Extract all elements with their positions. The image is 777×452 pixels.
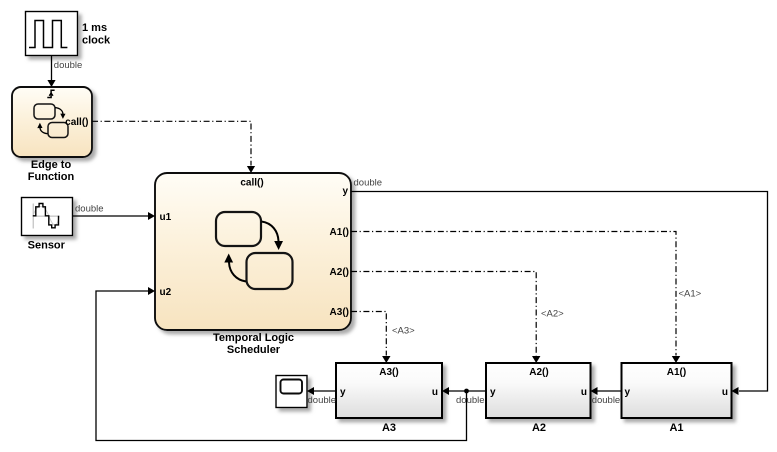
svg-text:Scheduler: Scheduler (227, 344, 281, 356)
svg-text:Edge to: Edge to (31, 159, 72, 171)
svg-text:call(): call() (65, 117, 88, 128)
svg-text:y: y (340, 387, 346, 398)
svg-text:double: double (308, 395, 337, 406)
svg-text:A3(): A3() (379, 367, 398, 378)
svg-text:double: double (354, 177, 383, 188)
svg-text:y: y (625, 387, 631, 398)
svg-text:double: double (54, 60, 83, 71)
svg-text:clock: clock (82, 34, 111, 46)
svg-text:u: u (581, 387, 587, 398)
svg-text:double: double (75, 203, 104, 214)
svg-text:A3(): A3() (330, 307, 349, 318)
svg-text:call(): call() (240, 178, 263, 189)
svg-text:double: double (456, 395, 485, 406)
svg-text:A2(): A2() (330, 267, 349, 278)
svg-text:<A3>: <A3> (392, 326, 415, 337)
svg-text:<A2>: <A2> (541, 309, 564, 320)
svg-text:u: u (432, 387, 438, 398)
svg-text:A1(): A1() (667, 367, 686, 378)
svg-text:Temporal Logic: Temporal Logic (213, 332, 294, 344)
svg-text:Function: Function (28, 171, 75, 183)
svg-text:u1: u1 (160, 212, 172, 223)
svg-text:double: double (592, 395, 621, 406)
svg-text:1 ms: 1 ms (82, 22, 107, 34)
svg-text:A2(): A2() (529, 367, 548, 378)
svg-text:<A1>: <A1> (679, 289, 702, 300)
svg-text:A2: A2 (532, 422, 546, 434)
svg-text:A3: A3 (382, 422, 396, 434)
svg-text:A1: A1 (669, 422, 683, 434)
svg-text:A1(): A1() (330, 227, 349, 238)
svg-text:y: y (490, 387, 496, 398)
svg-text:u: u (722, 387, 728, 398)
svg-text:u2: u2 (160, 287, 172, 298)
svg-text:Sensor: Sensor (28, 240, 66, 252)
svg-text:y: y (342, 186, 348, 197)
